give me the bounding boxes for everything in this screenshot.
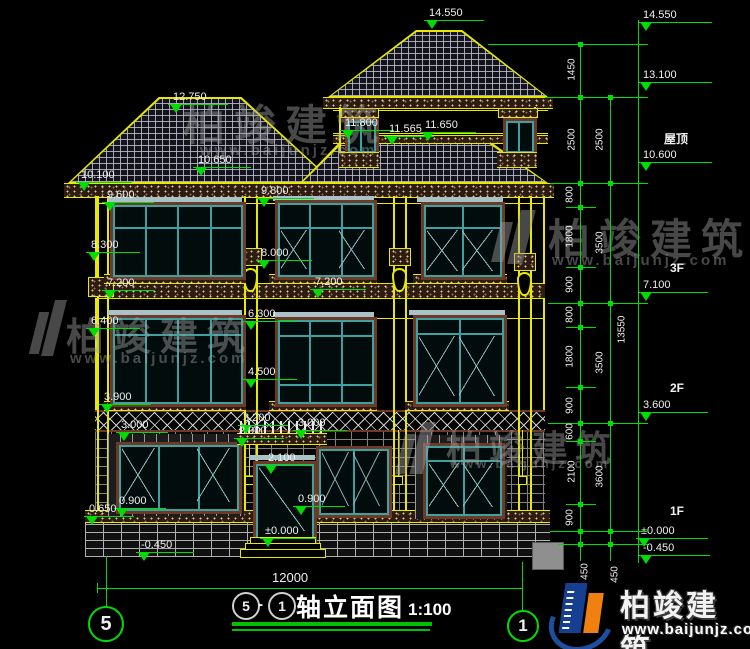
dim-value: 2500 — [595, 122, 606, 158]
window-1f-middle — [316, 446, 392, 518]
title-underline-thick — [232, 622, 432, 626]
tower-roof-tiles — [331, 32, 545, 96]
dim-value: 2500 — [567, 122, 578, 158]
cad-elevation-drawing: 柏竣建筑 www.baijunjz.com 柏竣建筑 www.baijunjz.… — [0, 0, 750, 649]
floor-tag-1f: 1F — [670, 504, 684, 518]
dim-value: 3600 — [595, 459, 606, 495]
elevation-marker: 14.550 — [424, 6, 484, 21]
dim-value: 3500 — [595, 225, 606, 261]
elevation-marker: -0.450 — [638, 541, 710, 556]
elevation-marker: 10.100 — [76, 168, 132, 183]
elevation-marker: 13.100 — [638, 68, 712, 83]
window-2f-right — [413, 315, 507, 407]
elevation-marker: 3.900 — [99, 390, 151, 405]
dim-value: 1450 — [567, 52, 578, 88]
elevation-marker: 6.400 — [86, 314, 140, 329]
elevation-marker: 12.750 — [168, 90, 228, 105]
extension-line — [545, 97, 648, 98]
elevation-marker: 10.650 — [193, 153, 251, 168]
dim-line-marker — [638, 20, 639, 563]
section-pier — [532, 542, 564, 570]
brand-logo: 柏竣建筑 www.baijunjz.com — [546, 579, 750, 645]
floor-tag-3f: 3F — [670, 261, 684, 275]
drop-square-mid-right — [394, 476, 403, 485]
window-2f-middle — [275, 317, 377, 407]
elevation-marker: 0.650 — [84, 502, 134, 517]
dim-value: 2100 — [567, 454, 578, 490]
floor-tag-2f: 2F — [670, 381, 684, 395]
width-dim-value: 12000 — [272, 570, 308, 585]
tower-column-right-window — [503, 118, 537, 156]
drawing-title: 轴立面图 — [296, 588, 404, 624]
entrance-step-3 — [240, 549, 326, 558]
elevation-marker: 7.200 — [310, 275, 366, 290]
dim-line-outer — [610, 97, 611, 561]
watermark-url: www.baijunjz.com — [70, 350, 247, 367]
elevation-marker: 2.100 — [263, 451, 313, 466]
drawing-scale: 1:100 — [408, 600, 451, 620]
dim-value: 1800 — [565, 339, 576, 375]
capital-mid-right — [389, 248, 411, 266]
elevation-marker: 3.000 — [293, 416, 347, 431]
logo-icon — [546, 579, 618, 645]
elevation-marker: 8.300 — [86, 238, 140, 253]
elevation-marker: 9.600 — [102, 188, 154, 203]
elevation-marker: 6.300 — [243, 307, 297, 322]
elevation-marker: 8.000 — [256, 246, 312, 261]
axis-line-5 — [106, 556, 107, 606]
title-dash: - — [258, 596, 263, 613]
elevation-marker: 7.200 — [102, 276, 154, 291]
tower-column-right-base — [497, 152, 537, 168]
extension-line — [548, 303, 648, 304]
elevation-marker: ±0.000 — [260, 524, 316, 539]
width-dim-tick — [97, 583, 98, 593]
elevation-marker: 9.800 — [256, 184, 314, 199]
axis-line-1 — [522, 562, 523, 610]
dim-value: 600 — [565, 414, 576, 450]
title-axis-a: 5 — [232, 592, 260, 620]
axis-bubble-1: 1 — [507, 610, 539, 642]
axis-bubble-5: 5 — [88, 606, 124, 642]
extension-line — [488, 44, 648, 45]
dim-value: 800 — [565, 177, 576, 213]
elevation-marker: 10.600 — [638, 148, 712, 163]
elevation-marker: 2.900 — [234, 424, 284, 439]
logo-site-text: www.baijunjz.com — [622, 621, 750, 638]
drop-square-right — [518, 476, 527, 485]
dim-value: 3500 — [595, 345, 606, 381]
dim-value: 800 — [565, 297, 576, 333]
elevation-marker: 4.500 — [243, 365, 297, 380]
dim-value: 1800 — [565, 219, 576, 255]
elevation-marker: 14.550 — [638, 8, 712, 23]
watermark-logo — [492, 210, 542, 266]
elevation-marker: -0.450 — [136, 538, 194, 553]
elevation-marker: 3.600 — [638, 398, 708, 413]
tower-roof — [328, 30, 548, 97]
elevation-marker: 0.900 — [293, 492, 345, 507]
elevation-marker: 11.650 — [420, 118, 476, 133]
dim-value: 900 — [565, 500, 576, 536]
title-underline-thin — [232, 629, 430, 631]
tower-column-right-capital — [498, 108, 538, 118]
logo-brand-text: 柏竣建筑 — [620, 581, 750, 649]
elevation-marker: 3.000 — [116, 418, 168, 433]
window-3f-middle — [275, 200, 377, 280]
extension-line — [548, 423, 648, 424]
roof-tag: 屋顶 — [664, 130, 688, 147]
extension-line — [558, 544, 648, 545]
watermark-url: www.baijunjz.com — [450, 456, 610, 471]
dim-total: 13550 — [617, 312, 628, 348]
title-axis-b: 1 — [268, 592, 296, 620]
watermark-logo — [398, 422, 442, 476]
watermark-logo — [34, 300, 64, 358]
elevation-marker: 7.100 — [638, 278, 708, 293]
